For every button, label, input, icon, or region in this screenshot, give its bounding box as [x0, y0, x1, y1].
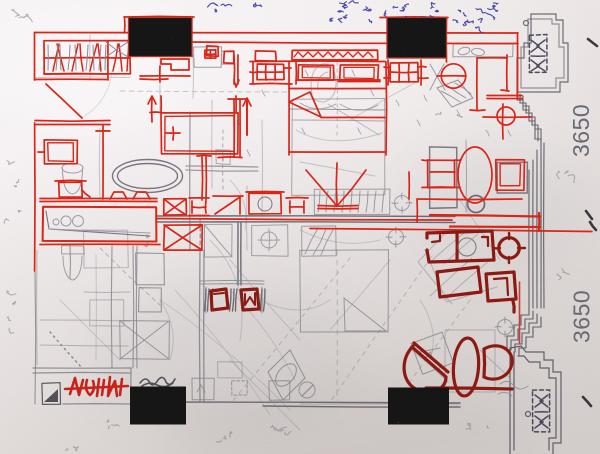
- svg-text:3650: 3650: [569, 290, 595, 343]
- svg-text:3650: 3650: [568, 104, 594, 157]
